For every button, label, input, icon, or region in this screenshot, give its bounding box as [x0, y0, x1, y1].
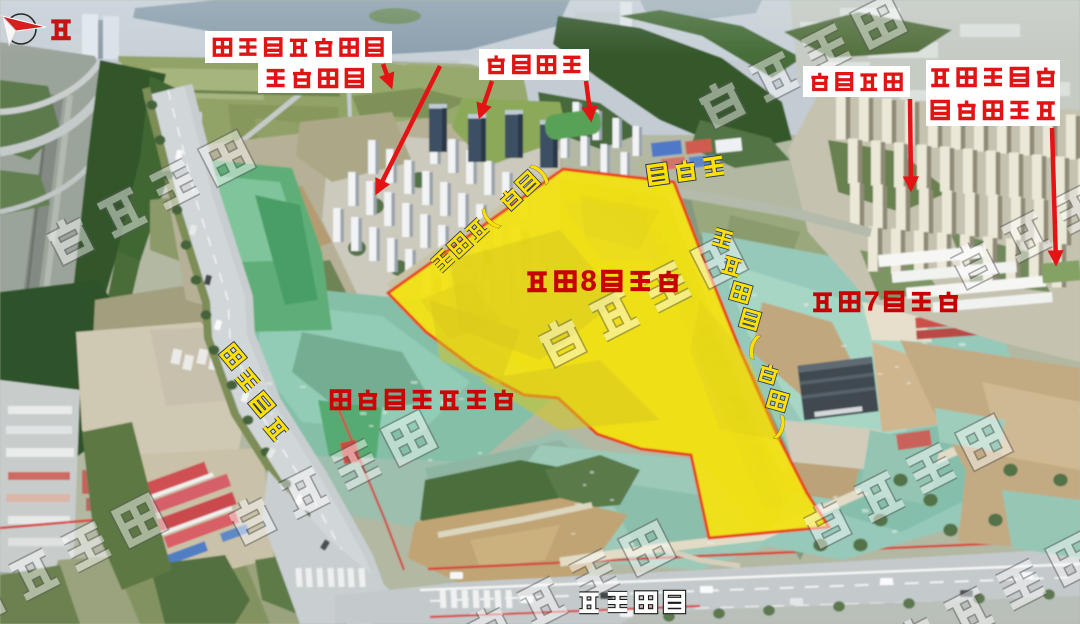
- svg-text:8: 8: [581, 265, 597, 297]
- svg-text:7: 7: [864, 286, 880, 317]
